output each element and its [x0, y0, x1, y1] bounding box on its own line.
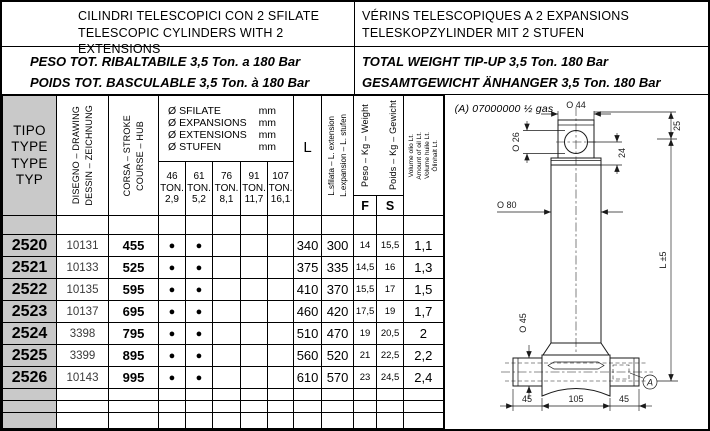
cell-weight-f: 17,5	[354, 301, 377, 323]
cell-diameter-empty	[241, 279, 268, 301]
extension-header-line: L.expansion – L. stufen	[339, 114, 348, 197]
stroke-header-line: CORSA – STROKE	[122, 115, 132, 196]
spacer-cell	[377, 413, 404, 429]
cell-diameter-dot: ●	[186, 323, 213, 345]
spacer-cell	[294, 216, 322, 235]
spacer-cell	[57, 389, 109, 401]
extension-header-line: L.sfilata – L. extension	[327, 116, 336, 196]
spacer-cell	[213, 413, 241, 429]
type-header-line: TYPE	[3, 156, 56, 172]
cell-diameter-empty	[213, 301, 241, 323]
weight-header-line: Peso – Kg – Weight	[360, 104, 370, 187]
spacer-cell	[57, 216, 109, 235]
cell-diameter-empty	[241, 257, 268, 279]
table-row: 252610143995●●6105702324,52,4	[3, 367, 444, 389]
bore-slot	[548, 362, 604, 369]
drawing-header-line: DESSIN – ZEICHNUNG	[84, 105, 94, 206]
cell-drawing-number: 10131	[57, 235, 109, 257]
spacer-cell	[294, 389, 322, 401]
cell-diameter-dot: ●	[186, 367, 213, 389]
spacer-cell	[377, 216, 404, 235]
cell-drawing-number: 3399	[57, 345, 109, 367]
volume-header-line: Amount of oil Lt.	[416, 132, 423, 180]
dim-pin-diameter: O 45	[518, 313, 528, 333]
cell-drawing-number: 3398	[57, 323, 109, 345]
cell-weight-f: 21	[354, 345, 377, 367]
col-header-ton-107: 107 TON. 16,1	[268, 162, 294, 216]
spacer-cell	[404, 389, 444, 401]
cell-stroke: 795	[109, 323, 159, 345]
cell-diameter-empty	[213, 345, 241, 367]
cell-diameter-empty	[213, 235, 241, 257]
spacer-cell	[377, 389, 404, 401]
table-row: 252210135595●●41037015,5171,5	[3, 279, 444, 301]
cell-diameter-dot: ●	[186, 257, 213, 279]
dim-base-center: 105	[568, 394, 583, 404]
spacer-cell	[109, 401, 159, 413]
dim-base-left: 45	[522, 394, 532, 404]
title-band: CILINDRI TELESCOPICI CON 2 SFILATE TELES…	[2, 2, 708, 47]
cell-diameter-empty	[213, 367, 241, 389]
cell-extension: 470	[322, 323, 354, 345]
cell-extension: 420	[322, 301, 354, 323]
spacer-cell	[268, 389, 294, 401]
cell-volume: 1,7	[404, 301, 444, 323]
weight-line: PESO TOT. RIBALTABILE 3,5 Ton. a 180 Bar	[30, 52, 354, 73]
cell-type: 2521	[3, 257, 57, 279]
cell-diameter-empty	[268, 323, 294, 345]
spacer-cell	[322, 401, 354, 413]
spacer-row	[3, 413, 444, 429]
cell-weight-s: 19	[377, 301, 404, 323]
spacer-cell	[159, 413, 186, 429]
cell-diameter-empty	[213, 323, 241, 345]
weight-line: POIDS TOT. BASCULABLE 3,5 Ton. à 180 Bar	[30, 73, 354, 94]
cell-length: 460	[294, 301, 322, 323]
cell-weight-f: 15,5	[354, 279, 377, 301]
dim-body-diameter: O 80	[497, 200, 517, 210]
cell-weight-f: 14	[354, 235, 377, 257]
dim-head-length: 25	[672, 121, 682, 131]
datasheet-page: CILINDRI TELESCOPICI CON 2 SFILATE TELES…	[0, 0, 710, 431]
spacer-cell	[3, 216, 57, 235]
spacer-cell	[109, 413, 159, 429]
cell-diameter-dot: ●	[159, 367, 186, 389]
spacer-row	[3, 401, 444, 413]
cell-diameter-dot: ●	[159, 345, 186, 367]
spacer-cell	[294, 413, 322, 429]
dim-eye-offset: 24	[617, 148, 627, 158]
cell-weight-s: 16	[377, 257, 404, 279]
cell-stroke: 695	[109, 301, 159, 323]
cell-weight-f: 23	[354, 367, 377, 389]
col-header-ton-76: 76 TON. 8,1	[213, 162, 241, 216]
cell-volume: 2	[404, 323, 444, 345]
spacer-cell	[241, 413, 268, 429]
volume-header-line: Ölinhalt Lt.	[432, 140, 439, 172]
cell-diameter-empty	[241, 301, 268, 323]
spacer-cell	[354, 389, 377, 401]
spacer-cell	[159, 401, 186, 413]
spacer-cell	[3, 389, 57, 401]
cell-diameter-empty	[213, 279, 241, 301]
spacer-row	[3, 216, 444, 235]
spacer-cell	[213, 389, 241, 401]
dimension-lines	[497, 111, 678, 411]
table-row: 25253399895●●5605202122,52,2	[3, 345, 444, 367]
cell-length: 375	[294, 257, 322, 279]
spacer-cell	[294, 401, 322, 413]
spacer-cell	[186, 401, 213, 413]
spacer-cell	[404, 216, 444, 235]
cell-volume: 2,2	[404, 345, 444, 367]
spacer-cell	[186, 216, 213, 235]
cell-volume: 2,4	[404, 367, 444, 389]
spacer-cell	[159, 389, 186, 401]
cell-volume: 1,3	[404, 257, 444, 279]
col-header-weight: Peso – Kg – Weight Poids – Kg – Gewicht	[354, 96, 404, 196]
type-header-line: TIPO	[3, 123, 56, 139]
diameter-header-line: Ø STUFEN mm	[159, 141, 293, 153]
cell-drawing-number: 10133	[57, 257, 109, 279]
table-body: 252010131455●●3403001415,51,125211013352…	[3, 216, 444, 429]
cell-diameter-empty	[268, 257, 294, 279]
cell-length: 610	[294, 367, 322, 389]
cell-stroke: 455	[109, 235, 159, 257]
cell-drawing-number: 10137	[57, 301, 109, 323]
diameter-header-line: Ø SFILATE mm	[159, 105, 293, 117]
cell-type: 2524	[3, 323, 57, 345]
cell-diameter-dot: ●	[186, 301, 213, 323]
col-header-diameters: Ø SFILATE mm Ø EXPANSIONS mm Ø EXTENSION…	[159, 96, 294, 162]
cell-diameter-empty	[268, 279, 294, 301]
dim-closed-length: L ±5	[658, 251, 668, 268]
spacer-cell	[57, 413, 109, 429]
cell-volume: 1,5	[404, 279, 444, 301]
cell-diameter-empty	[241, 323, 268, 345]
cell-diameter-empty	[241, 367, 268, 389]
col-header-ton-61: 61 TON. 5,2	[186, 162, 213, 216]
weight-line: GESAMTGEWICHT ÄNHANGER 3,5 Ton. 180 Bar	[362, 73, 708, 94]
spacer-cell	[109, 389, 159, 401]
table-row: 25243398795●●5104701920,52	[3, 323, 444, 345]
col-header-extension: L.sfilata – L. extension L.expansion – L…	[322, 96, 354, 216]
cell-weight-s: 17	[377, 279, 404, 301]
cell-weight-f: 19	[354, 323, 377, 345]
spacer-cell	[241, 216, 268, 235]
weight-right: TOTAL WEIGHT TIP-UP 3,5 Ton. 180 Bar GES…	[355, 47, 708, 94]
spacer-cell	[268, 413, 294, 429]
spacer-cell	[268, 401, 294, 413]
cell-diameter-dot: ●	[186, 235, 213, 257]
diameter-header-line: Ø EXPANSIONS mm	[159, 117, 293, 129]
cell-drawing-number: 10143	[57, 367, 109, 389]
table-row: 252010131455●●3403001415,51,1	[3, 235, 444, 257]
cell-diameter-empty	[268, 235, 294, 257]
col-header-ton-91: 91 TON. 11,7	[241, 162, 268, 216]
title-line: VÉRINS TELESCOPIQUES A 2 EXPANSIONS	[362, 8, 708, 25]
cell-diameter-empty	[268, 345, 294, 367]
col-header-weight-s: S	[377, 196, 404, 216]
cell-weight-s: 24,5	[377, 367, 404, 389]
cell-length: 410	[294, 279, 322, 301]
stroke-header-line: COURSE – HUB	[135, 121, 145, 191]
spacer-cell	[404, 413, 444, 429]
cell-type: 2523	[3, 301, 57, 323]
cell-diameter-empty	[241, 345, 268, 367]
col-header-stroke: CORSA – STROKE COURSE – HUB	[109, 96, 159, 216]
col-header-ton-46: 46 TON. 2,9	[159, 162, 186, 216]
table-row: 252310137695●●46042017,5191,7	[3, 301, 444, 323]
spacer-cell	[268, 216, 294, 235]
title-left: CILINDRI TELESCOPICI CON 2 SFILATE TELES…	[2, 2, 355, 46]
type-header-line: TYPE	[3, 139, 56, 155]
spec-table: TIPO TYPE TYPE TYP DISEGNO – DRAWING DES…	[2, 95, 445, 429]
spacer-cell	[109, 216, 159, 235]
spacer-cell	[241, 389, 268, 401]
cell-length: 560	[294, 345, 322, 367]
weight-line: TOTAL WEIGHT TIP-UP 3,5 Ton. 180 Bar	[362, 52, 708, 73]
cell-length: 340	[294, 235, 322, 257]
spacer-cell	[213, 401, 241, 413]
dim-eye-hole-diameter: O 26	[511, 132, 521, 152]
base-mount	[542, 355, 610, 396]
spacer-cell	[213, 216, 241, 235]
weight-band: PESO TOT. RIBALTABILE 3,5 Ton. a 180 Bar…	[2, 47, 708, 95]
cell-type: 2520	[3, 235, 57, 257]
cell-weight-f: 14,5	[354, 257, 377, 279]
cell-stroke: 525	[109, 257, 159, 279]
cell-volume: 1,1	[404, 235, 444, 257]
weight-header-line: Poids – Kg – Gewicht	[388, 100, 398, 190]
title-line: TELESKOPZYLINDER MIT 2 STUFEN	[362, 25, 708, 42]
cell-weight-s: 15,5	[377, 235, 404, 257]
spacer-cell	[377, 401, 404, 413]
spacer-row	[3, 389, 444, 401]
cell-extension: 520	[322, 345, 354, 367]
cell-extension: 335	[322, 257, 354, 279]
col-header-type: TIPO TYPE TYPE TYP	[3, 96, 57, 216]
cell-type: 2522	[3, 279, 57, 301]
cell-diameter-dot: ●	[159, 323, 186, 345]
spacer-cell	[186, 413, 213, 429]
dim-base-right: 45	[619, 394, 629, 404]
spacer-cell	[3, 401, 57, 413]
cell-diameter-empty	[241, 235, 268, 257]
cell-stroke: 995	[109, 367, 159, 389]
cell-diameter-dot: ●	[186, 279, 213, 301]
drawing-panel: (A) 07000000 ½ gas	[445, 95, 708, 429]
main-area: TIPO TYPE TYPE TYP DISEGNO – DRAWING DES…	[2, 95, 708, 429]
volume-header-line: Volume olio Lt.	[408, 134, 415, 177]
volume-header-line: Volume huile Lt.	[424, 132, 431, 179]
cylinder-drawing-svg: O 44 O 26 24 25 O 80 L ±5 O 45 45 105 45…	[445, 95, 709, 429]
title-line: CILINDRI TELESCOPICI CON 2 SFILATE	[78, 8, 354, 25]
port-marker-letter: A	[646, 378, 653, 388]
spacer-cell	[57, 401, 109, 413]
cell-diameter-dot: ●	[186, 345, 213, 367]
cell-diameter-dot: ●	[159, 301, 186, 323]
cell-drawing-number: 10135	[57, 279, 109, 301]
spacer-cell	[3, 413, 57, 429]
spacer-cell	[354, 216, 377, 235]
cell-weight-s: 22,5	[377, 345, 404, 367]
spacer-cell	[354, 401, 377, 413]
cell-diameter-empty	[213, 257, 241, 279]
cell-extension: 570	[322, 367, 354, 389]
dim-top-diameter: O 44	[566, 100, 586, 110]
cell-stroke: 595	[109, 279, 159, 301]
spacer-cell	[404, 401, 444, 413]
cell-diameter-dot: ●	[159, 235, 186, 257]
drawing-header-line: DISEGNO – DRAWING	[71, 106, 81, 204]
type-header-line: TYP	[3, 172, 56, 188]
cell-diameter-dot: ●	[159, 257, 186, 279]
spacer-cell	[322, 389, 354, 401]
col-header-volume: Volume olio Lt. Amount of oil Lt. Volume…	[404, 96, 444, 216]
cell-length: 510	[294, 323, 322, 345]
table-row: 252110133525●●37533514,5161,3	[3, 257, 444, 279]
cell-extension: 300	[322, 235, 354, 257]
col-header-weight-f: F	[354, 196, 377, 216]
cell-type: 2526	[3, 367, 57, 389]
spacer-cell	[159, 216, 186, 235]
title-right: VÉRINS TELESCOPIQUES A 2 EXPANSIONS TELE…	[355, 2, 708, 46]
spacer-cell	[322, 216, 354, 235]
cell-diameter-empty	[268, 367, 294, 389]
col-header-drawing: DISEGNO – DRAWING DESSIN – ZEICHNUNG	[57, 96, 109, 216]
cell-diameter-empty	[268, 301, 294, 323]
cell-type: 2525	[3, 345, 57, 367]
cell-extension: 370	[322, 279, 354, 301]
diameter-header-line: Ø EXTENSIONS mm	[159, 129, 293, 141]
spacer-cell	[186, 389, 213, 401]
weight-left: PESO TOT. RIBALTABILE 3,5 Ton. a 180 Bar…	[2, 47, 355, 94]
cell-weight-s: 20,5	[377, 323, 404, 345]
spacer-cell	[241, 401, 268, 413]
spacer-cell	[354, 413, 377, 429]
col-header-length: L	[294, 96, 322, 216]
spacer-cell	[322, 413, 354, 429]
cell-diameter-dot: ●	[159, 279, 186, 301]
cell-stroke: 895	[109, 345, 159, 367]
